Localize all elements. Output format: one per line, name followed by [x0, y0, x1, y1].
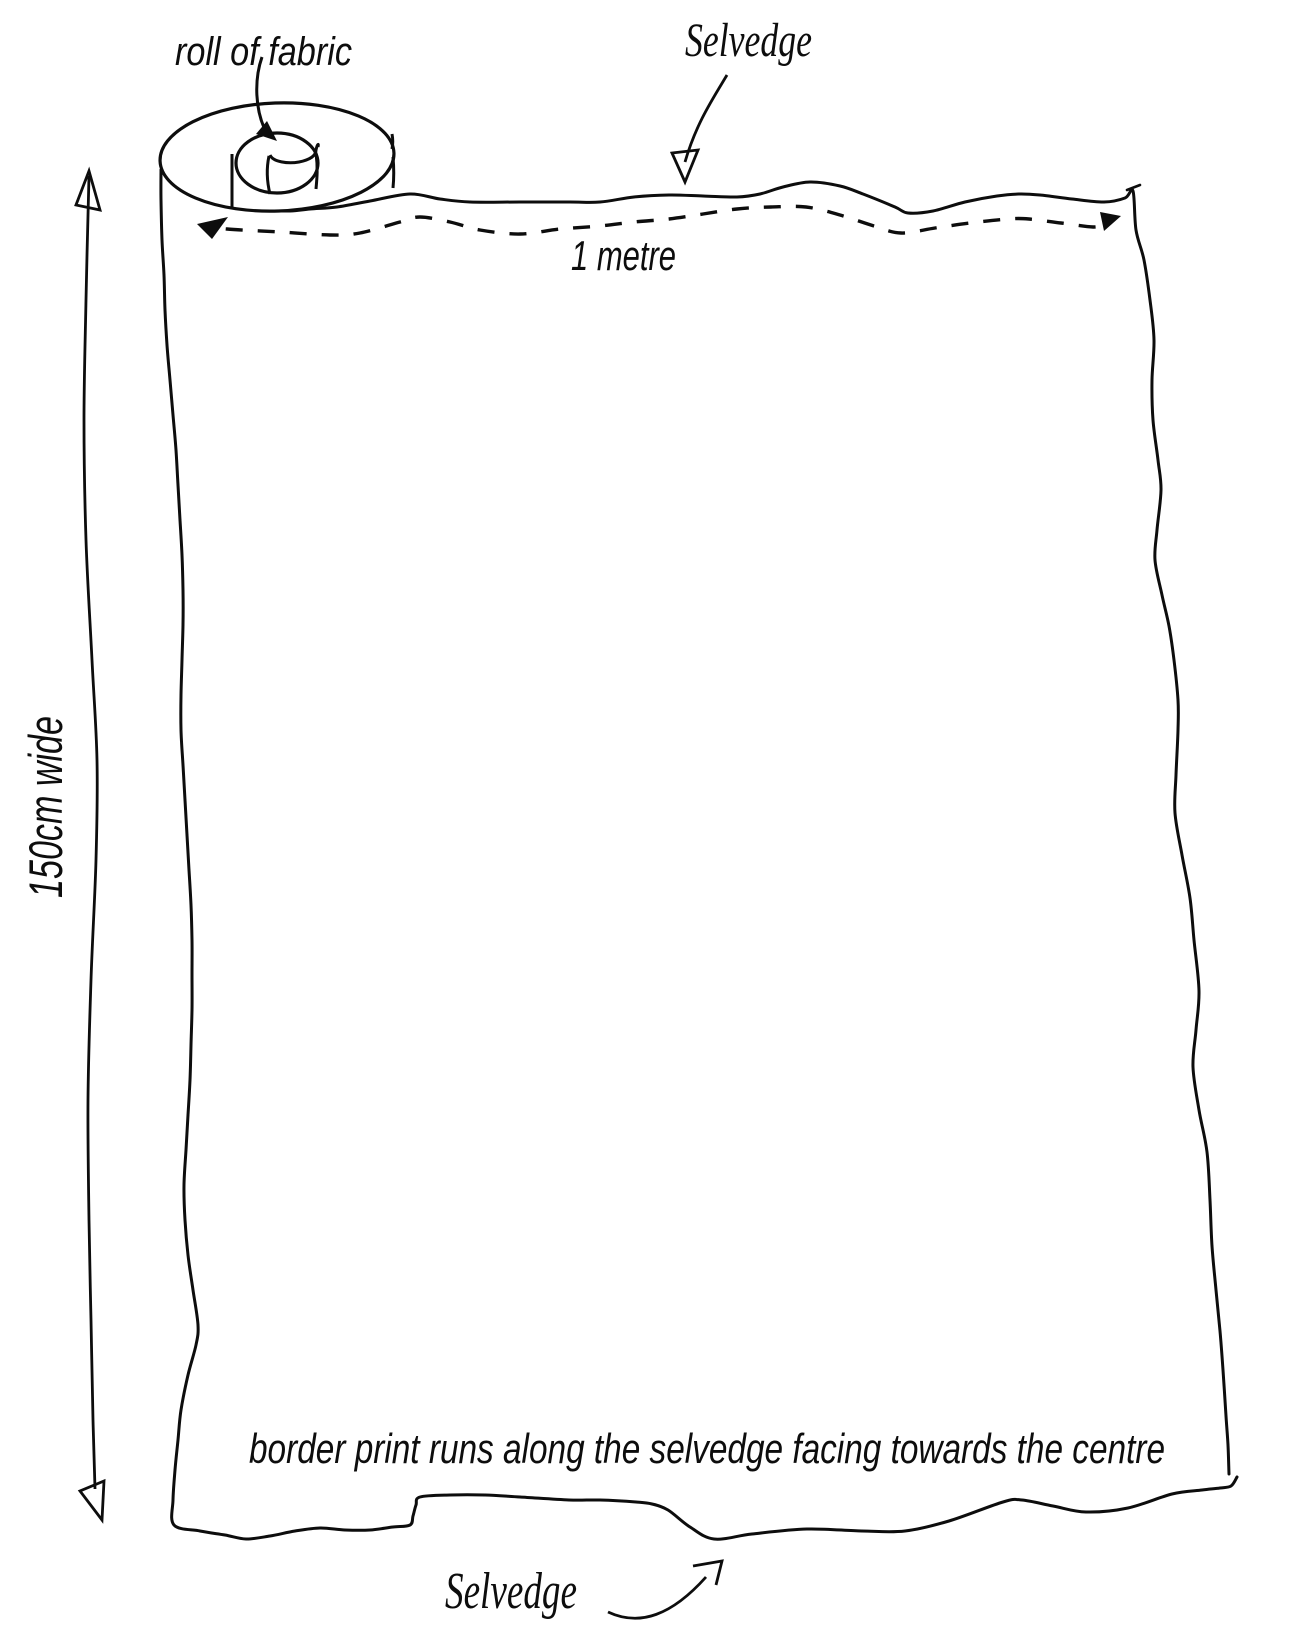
svg-text:roll of fabric: roll of fabric: [175, 30, 352, 74]
svg-text:1 metre: 1 metre: [571, 232, 676, 279]
svg-text:Selvedge: Selvedge: [445, 1563, 577, 1620]
svg-text:border print runs along the se: border print runs along the selvedge fac…: [249, 1425, 1165, 1472]
svg-text:150cm wide: 150cm wide: [19, 716, 72, 898]
svg-text:Selvedge: Selvedge: [685, 14, 812, 67]
